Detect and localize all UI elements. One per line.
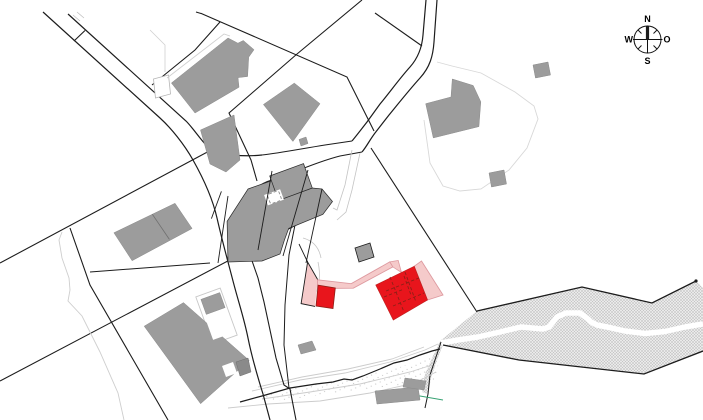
svg-text:N: N: [644, 14, 651, 24]
svg-text:S: S: [644, 56, 650, 66]
svg-text:O: O: [664, 35, 671, 45]
svg-text:W: W: [625, 35, 634, 45]
